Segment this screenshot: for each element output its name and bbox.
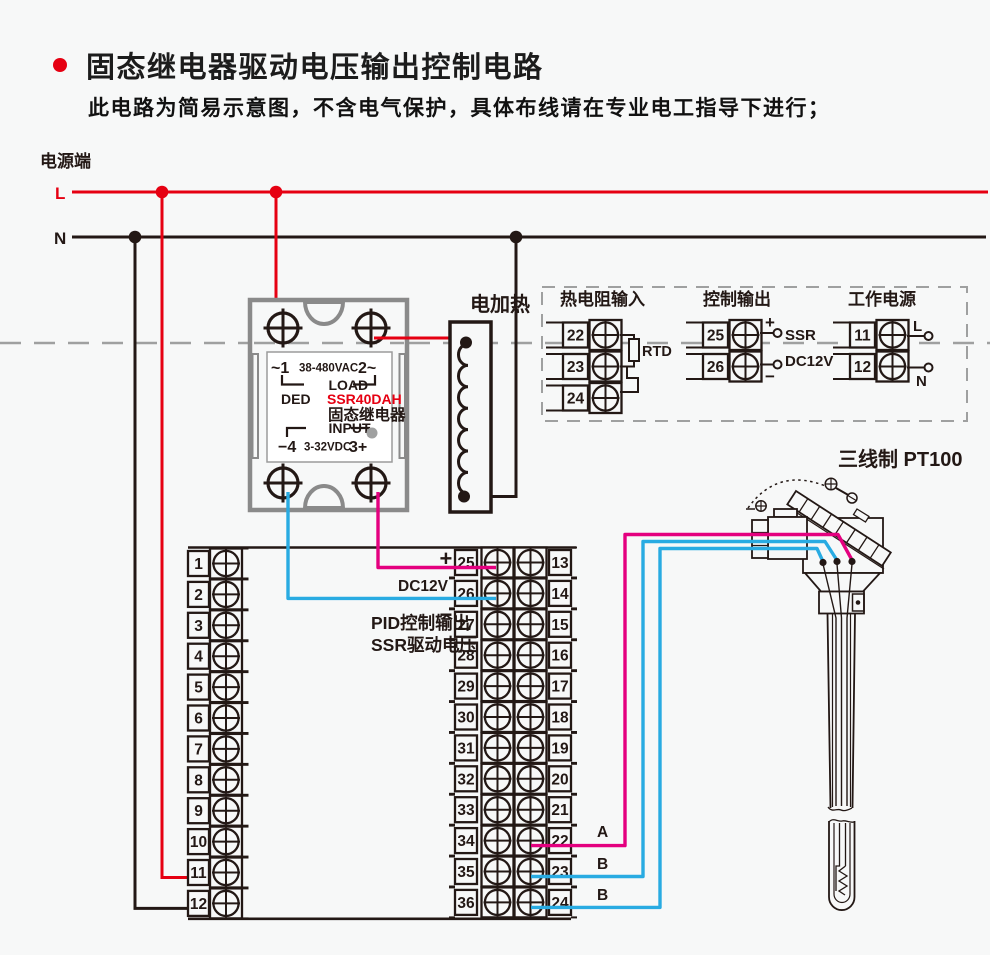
heater-bottom-node [458, 491, 470, 503]
screw-terminal-icon[interactable] [210, 858, 242, 888]
screw-terminal-icon[interactable] [210, 888, 242, 918]
panel-rtd-rows: 222324 [546, 320, 622, 413]
terminal-number: 22 [567, 328, 584, 345]
pt100-sensor: 三线制 PT100 [746, 447, 962, 910]
terminal-number: 3 [194, 618, 203, 635]
terminal-number: 18 [551, 710, 569, 727]
terminal-number: 12 [854, 359, 871, 376]
output-dc12v-label: DC12V [785, 353, 833, 370]
wire-label-a: A [597, 824, 608, 841]
screw-terminal-icon[interactable] [482, 764, 514, 794]
terminal-strip: 123456789101112 251326142715281629173018… [188, 546, 608, 919]
wire-label-b1: B [597, 856, 608, 873]
screw-terminal-icon[interactable] [482, 887, 514, 917]
terminal-number: 13 [551, 555, 569, 572]
ssr-module: ~1 38-480VAC 2~ LOAD DED SSR40DAH 固态继电器 … [250, 300, 407, 510]
terminal-number: 2 [194, 587, 203, 604]
screw-terminal-icon[interactable] [515, 857, 547, 887]
live-label: L [55, 184, 65, 203]
terminal-number: 31 [457, 740, 475, 757]
screw-terminal-icon[interactable] [482, 640, 514, 670]
control-output-title: 控制输出 [703, 289, 771, 309]
terminal-number: 5 [194, 680, 203, 697]
panel-out-rows: 2526 [686, 320, 762, 382]
terminal-number: 11 [854, 328, 871, 345]
sensor-terminal-dot [848, 558, 855, 565]
gland-nut [752, 520, 768, 558]
wiring-diagram-page: 固态继电器驱动电压输出控制电路 此电路为简易示意图，不含电气保护，具体布线请在专… [0, 0, 990, 955]
supply-neutral-label: N [916, 373, 927, 390]
terminal-number: 17 [551, 679, 568, 696]
pt100-wire-b2 [531, 549, 823, 908]
terminal-number: 23 [551, 864, 569, 881]
terminal-number: 24 [551, 895, 569, 912]
screw-terminal-icon[interactable] [210, 703, 242, 733]
rtd-resistor-icon [629, 339, 639, 361]
screw-terminal-icon[interactable] [482, 578, 514, 608]
junction-dot [156, 186, 169, 199]
gland-tab [774, 509, 797, 517]
sensor-funnel [805, 573, 880, 592]
panel-sup-rows: 1112 [833, 320, 909, 382]
terminal-number: 33 [457, 802, 475, 819]
open-terminal-icon [925, 364, 933, 372]
screw-terminal-icon[interactable] [482, 826, 514, 856]
ssr-led-icon [367, 428, 378, 439]
screw-terminal-icon[interactable] [482, 733, 514, 763]
screw-terminal-icon[interactable] [482, 857, 514, 887]
screw-terminal-icon[interactable] [515, 702, 547, 732]
rtd-label: RTD [642, 344, 672, 360]
screw-terminal-icon[interactable] [482, 548, 514, 578]
screw-terminal-icon[interactable] [210, 579, 242, 609]
screw-terminal-icon[interactable] [210, 672, 242, 702]
wire-label-b2: B [597, 887, 608, 904]
sensor-terminal-dot [819, 559, 826, 566]
terminal-number: 29 [457, 679, 475, 696]
screw-terminal-icon[interactable] [730, 352, 762, 382]
strip-left-rows: 123456789101112 [188, 549, 249, 919]
screw-terminal-icon[interactable] [515, 671, 547, 701]
probe-break-bottom [829, 820, 854, 822]
terminal-number: 14 [551, 586, 569, 603]
terminal-number: 20 [551, 771, 568, 788]
screw-terminal-icon[interactable] [515, 548, 547, 578]
ssr-brand: DED [281, 391, 311, 407]
screw-terminal-icon[interactable] [515, 609, 547, 639]
terminal-number: 10 [190, 834, 207, 851]
open-terminal-icon [925, 332, 933, 340]
screw-terminal-icon[interactable] [515, 640, 547, 670]
output-ssr-label: SSR [785, 327, 816, 344]
ssr-input4-label: −4 [278, 439, 296, 456]
screw-terminal-icon[interactable] [515, 764, 547, 794]
power-side-label: 电源端 [40, 151, 91, 171]
screw-terminal-icon[interactable] [590, 383, 622, 413]
terminal-number: 11 [190, 865, 207, 882]
plus-sign: + [765, 313, 775, 332]
screw-terminal-icon[interactable] [210, 549, 242, 579]
screw-terminal-icon[interactable] [730, 320, 762, 350]
pid-note-line1: PID控制输出 [371, 613, 470, 633]
supply-live-label: L [913, 318, 922, 335]
heater-box [450, 322, 491, 512]
screw-terminal-icon[interactable] [515, 887, 547, 917]
screw-terminal-icon[interactable] [210, 610, 242, 640]
ssr-voltage-label: 38-480VAC [299, 363, 358, 375]
terminal-number: 6 [194, 711, 203, 728]
screw-terminal-icon[interactable] [482, 609, 514, 639]
screw-terminal-icon[interactable] [515, 826, 547, 856]
circuit-diagram: 电源端 L N ~1 38-480VAC [0, 0, 990, 955]
ssr-input3-label: 3+ [349, 439, 367, 456]
strip-dc12v-label: DC12V [398, 578, 449, 595]
screw-terminal-icon[interactable] [210, 641, 242, 671]
terminal-number: 35 [457, 864, 475, 881]
screw-terminal-icon[interactable] [210, 765, 242, 795]
sensor-terminal-dot [833, 558, 840, 565]
ssr-terminal1-label: ~1 [271, 360, 289, 377]
neutral-label: N [54, 229, 66, 248]
terminal-number: 30 [457, 710, 474, 727]
pt100-wire-a [531, 535, 852, 846]
heater-top-node [460, 337, 472, 349]
terminal-number: 24 [567, 391, 585, 408]
junction-dot [270, 186, 283, 199]
terminal-number: 34 [457, 833, 475, 850]
screw-terminal-icon[interactable] [515, 578, 547, 608]
minus-sign: − [765, 367, 775, 386]
probe-element-icon [839, 866, 847, 895]
screw-terminal-icon[interactable] [210, 827, 242, 857]
terminal-number: 25 [707, 328, 725, 345]
terminal-number: 19 [551, 740, 569, 757]
pt100-label: 三线制 PT100 [838, 447, 962, 471]
terminal-number: 22 [551, 833, 568, 850]
screw-terminal-icon[interactable] [210, 796, 242, 826]
rtd-input-title: 热电阻输入 [560, 289, 645, 309]
pid-note-line2: SSR驱动电压 [371, 635, 477, 655]
terminal-number: 15 [551, 617, 569, 634]
terminal-number: 8 [194, 772, 203, 789]
working-power-title: 工作电源 [848, 289, 916, 309]
screw-terminal-icon[interactable] [590, 352, 622, 382]
probe-break-top [828, 807, 852, 811]
terminal-number: 12 [190, 896, 207, 913]
gland-flange [768, 517, 807, 559]
io-panel: 热电阻输入 控制输出 工作电源 222324 RTD 2526 + − SSR … [542, 287, 967, 421]
screw-terminal-icon[interactable] [515, 733, 547, 763]
screw-terminal-icon[interactable] [482, 702, 514, 732]
screw-terminal-icon[interactable] [482, 795, 514, 825]
terminal-number: 4 [194, 649, 203, 666]
terminal-number: 16 [551, 648, 569, 665]
screw-terminal-icon[interactable] [877, 320, 909, 350]
terminal-number: 9 [194, 803, 203, 820]
junction-dot [129, 231, 142, 244]
ssr-terminal2-label: 2~ [358, 360, 376, 377]
screw-terminal-icon[interactable] [590, 320, 622, 350]
terminal-number: 25 [457, 555, 475, 572]
ssr-input-label: INPUT [329, 420, 371, 436]
ssr-model: SSR40DAH [327, 391, 402, 407]
terminal-number: 7 [194, 741, 203, 758]
terminal-number: 1 [194, 556, 203, 573]
heater-label: 电加热 [470, 293, 530, 316]
probe-lower-tube [829, 821, 855, 910]
ssr-input-voltage: 3-32VDC [304, 442, 351, 454]
screw-terminal-icon[interactable] [210, 734, 242, 764]
screw-terminal-icon[interactable] [877, 352, 909, 382]
terminal-number: 26 [707, 359, 725, 376]
terminal-number: 36 [457, 895, 475, 912]
screw-terminal-icon[interactable] [515, 795, 547, 825]
terminal-number: 21 [551, 802, 569, 819]
terminal-number: 32 [457, 771, 474, 788]
terminal-number: 26 [457, 586, 475, 603]
screw-terminal-icon[interactable] [482, 671, 514, 701]
terminal-number: 23 [567, 359, 585, 376]
strip-right-rows: 2513261427152816291730183119322033213422… [449, 548, 577, 918]
